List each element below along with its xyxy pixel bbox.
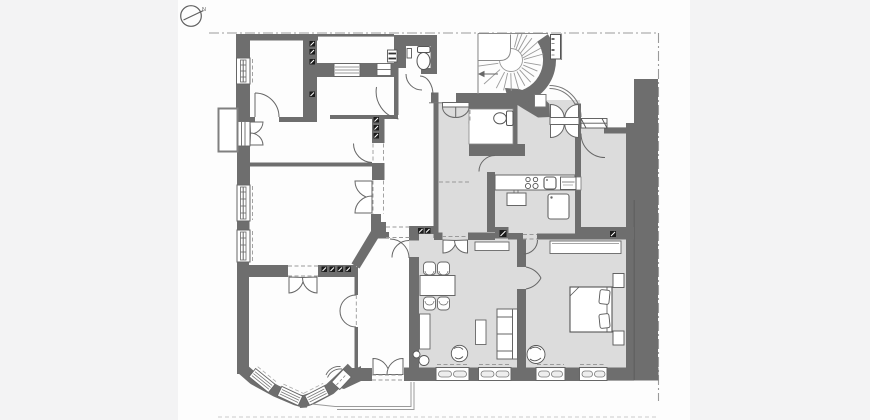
svg-text:N: N	[202, 7, 206, 13]
